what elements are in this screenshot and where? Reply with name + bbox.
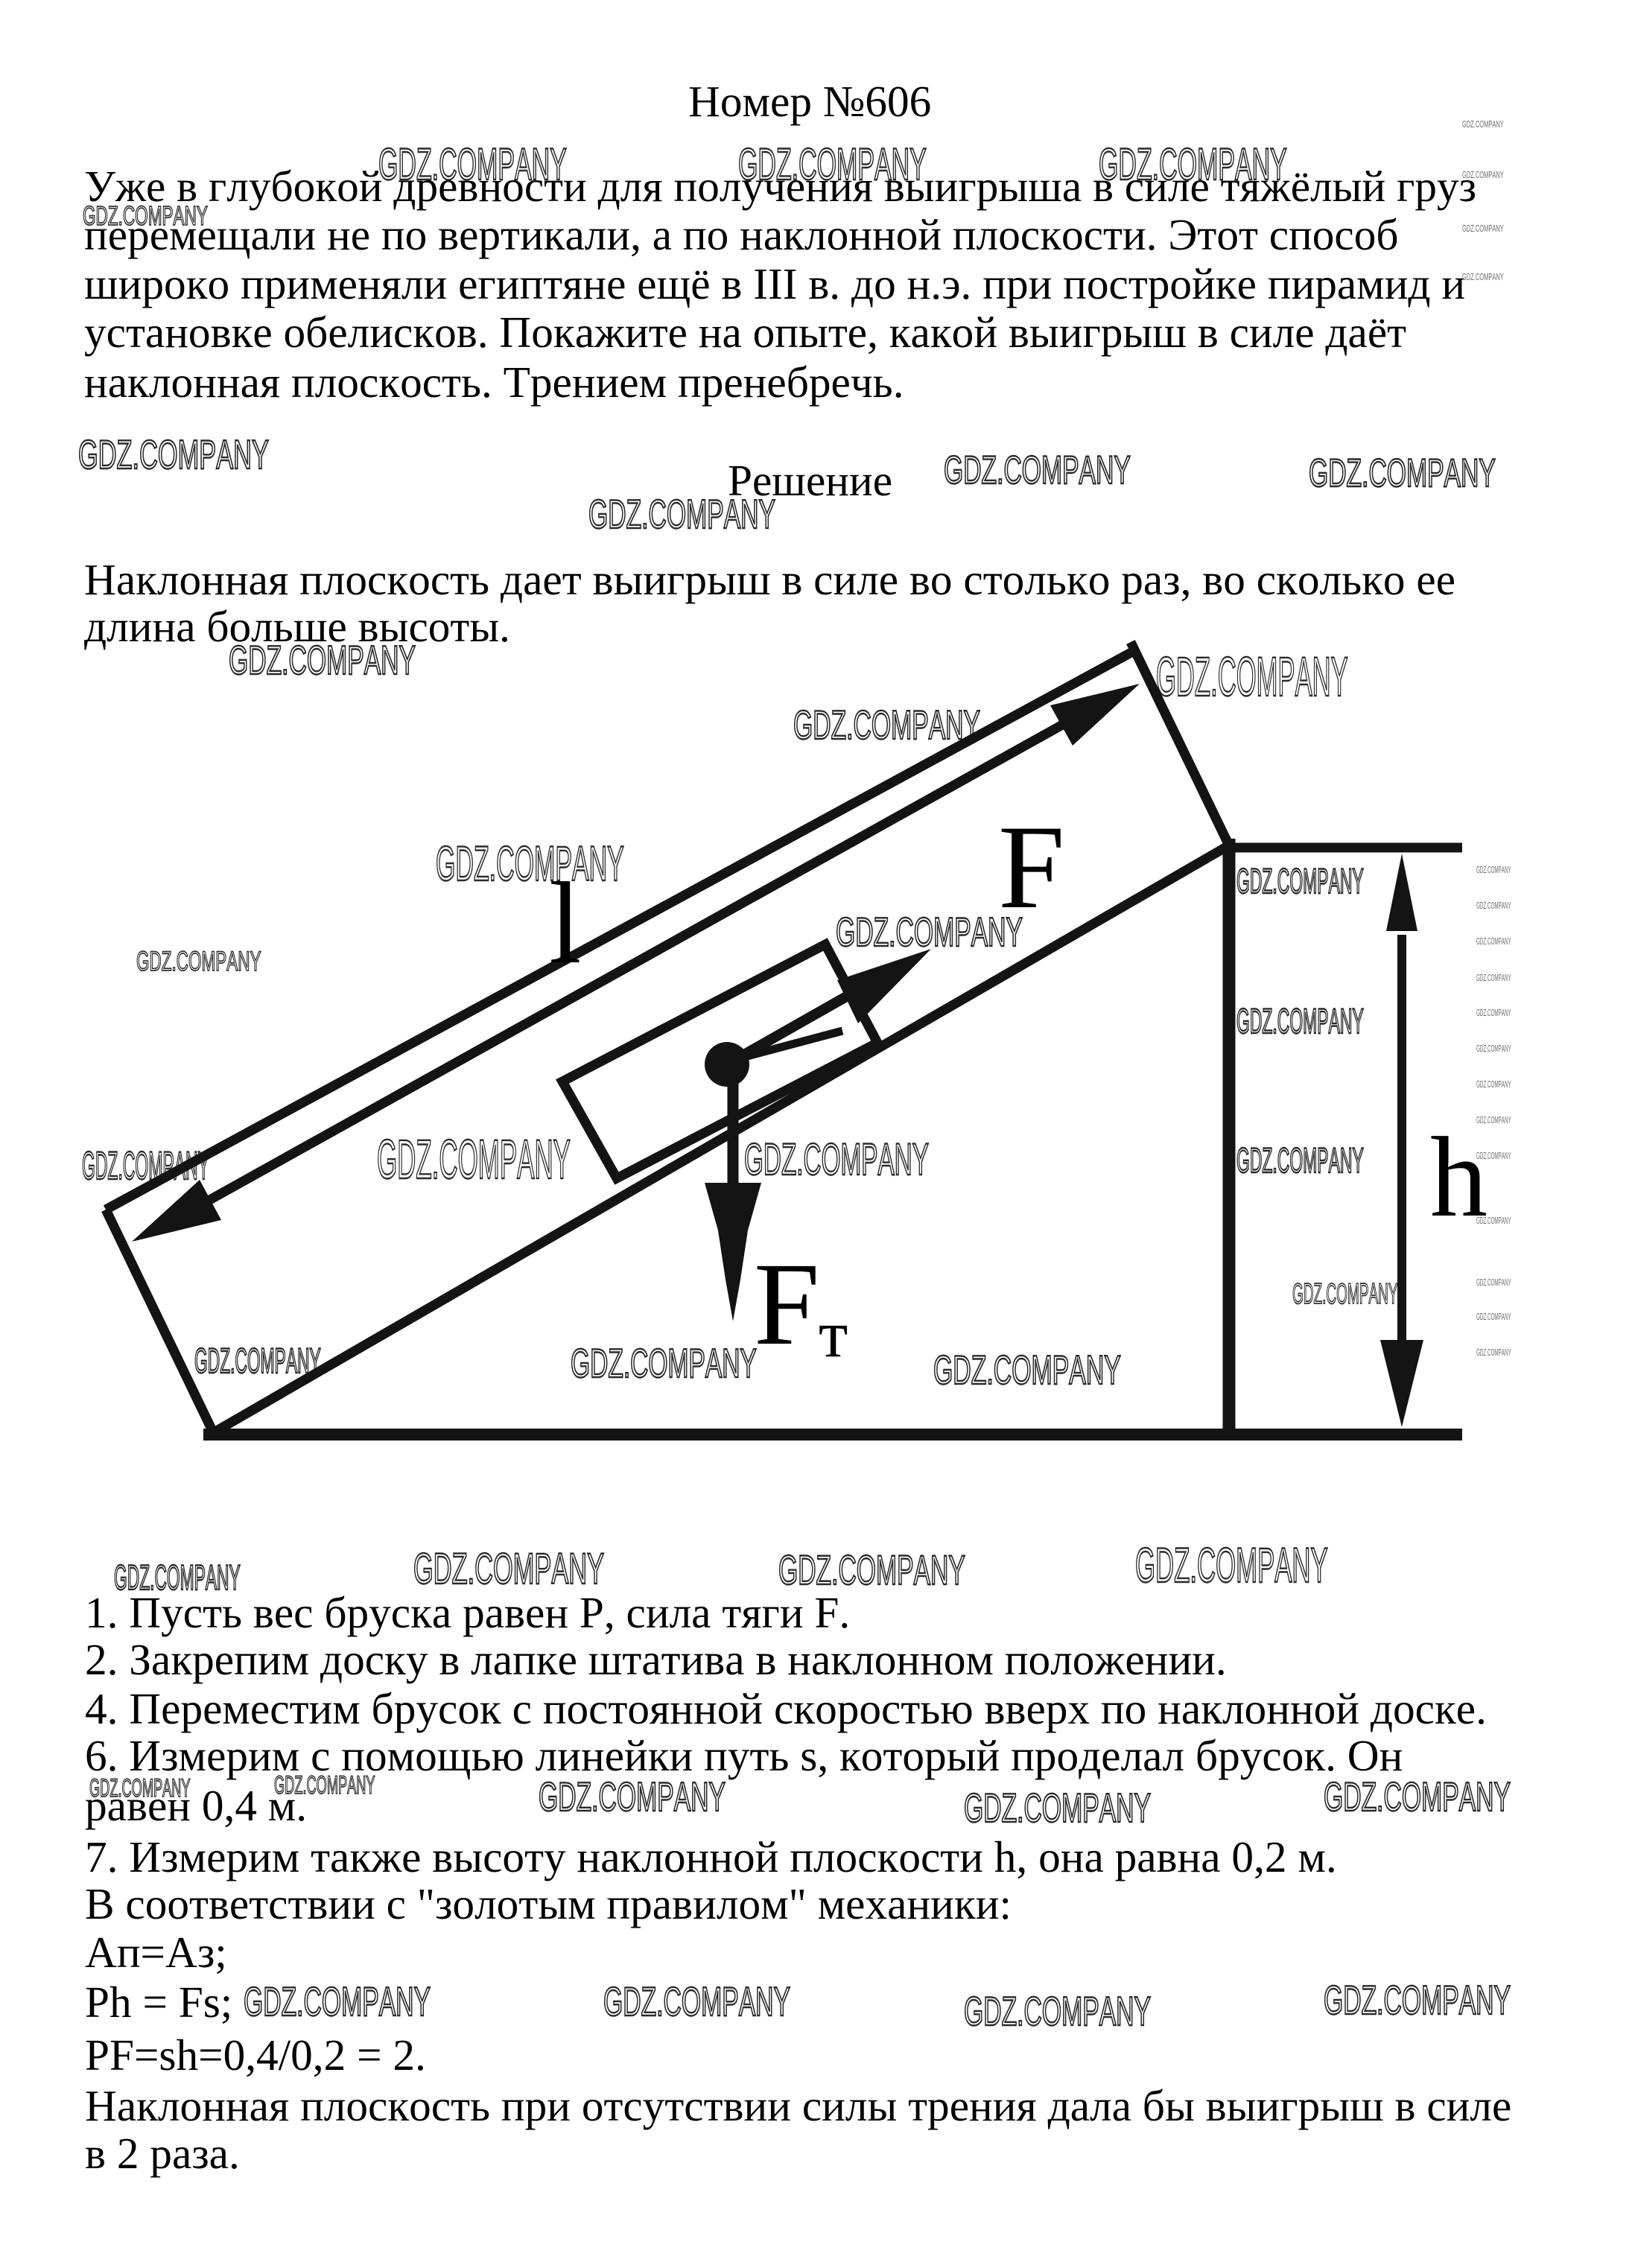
svg-text:F: F <box>754 1239 819 1370</box>
svg-text:т: т <box>819 1297 848 1371</box>
svg-text:h: h <box>1430 1114 1487 1241</box>
svg-text:F: F <box>998 801 1065 933</box>
svg-text:l: l <box>549 858 582 988</box>
